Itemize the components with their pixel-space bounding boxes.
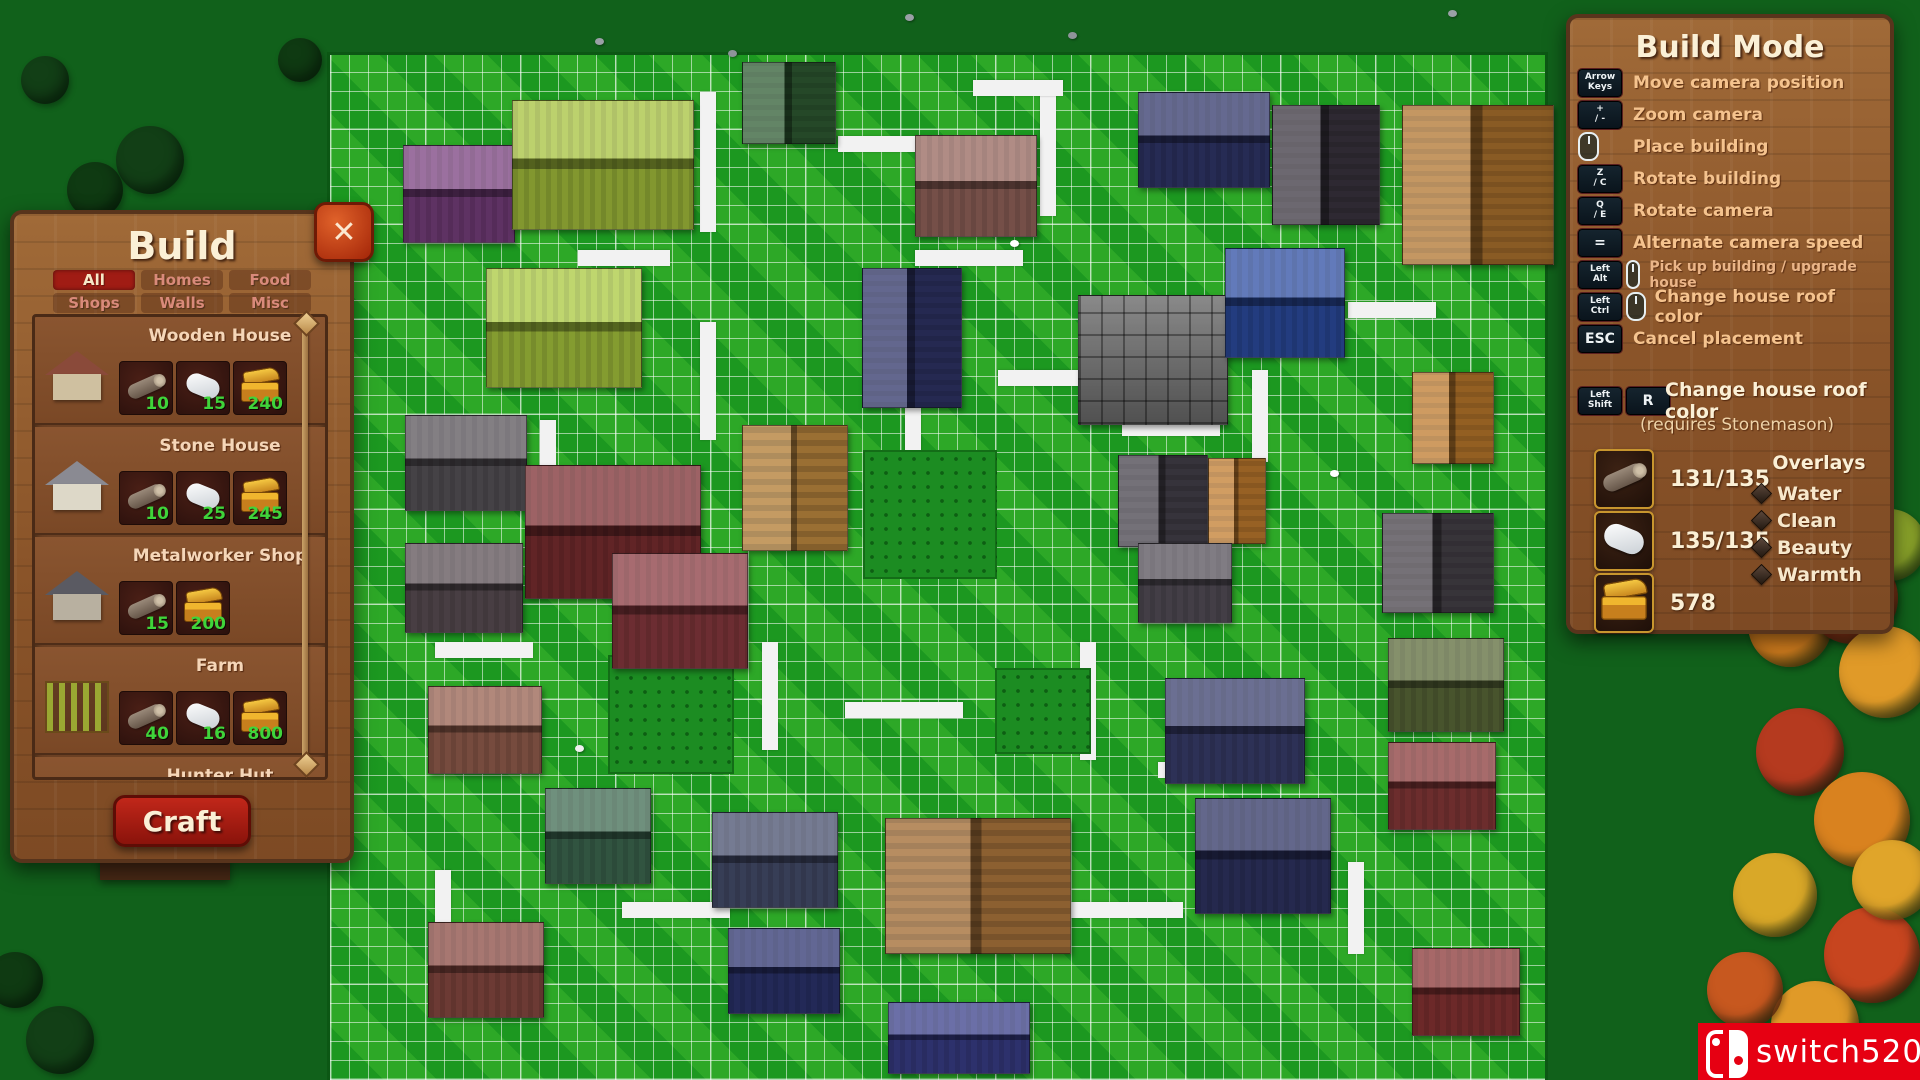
roof-shortcut-keys: Left ShiftR xyxy=(1578,387,1655,415)
rock-prop xyxy=(905,14,914,21)
road-tile xyxy=(973,80,1063,96)
resource-value: 578 xyxy=(1670,591,1716,616)
cost-gold-chest: 245 xyxy=(233,471,287,525)
nintendo-switch-logo-icon xyxy=(1706,1030,1748,1074)
build-item-stone-house[interactable]: Stone House1025245 xyxy=(35,427,325,535)
building[interactable] xyxy=(915,135,1037,237)
build-item-name: Hunter Hut xyxy=(119,766,321,780)
overlays-section: Overlays WaterCleanBeautyWarmth xyxy=(1754,452,1884,588)
building[interactable] xyxy=(1272,105,1380,225)
key-left-ctrl: Left Ctrl xyxy=(1578,293,1622,321)
thumb-roof xyxy=(45,351,109,375)
resource-row: 135/135 xyxy=(1594,512,1770,570)
tree xyxy=(21,56,69,104)
shortcut-keys: = xyxy=(1578,229,1624,257)
building[interactable] xyxy=(428,686,542,774)
cost-gold-chest: 240 xyxy=(233,361,287,415)
shortcut-row: Place building xyxy=(1578,132,1884,161)
build-item-hunter-hut[interactable]: Hunter Hut xyxy=(35,757,325,780)
tree xyxy=(0,952,43,1008)
resource-stone xyxy=(1594,511,1654,571)
rock-prop xyxy=(595,38,604,45)
cost-value: 800 xyxy=(248,724,284,744)
cost-log: 15 xyxy=(119,581,173,635)
road-tile xyxy=(435,642,533,658)
joycon-right-icon xyxy=(1729,1030,1748,1078)
cost-value: 240 xyxy=(248,394,284,414)
watermark-switch520: switch520 xyxy=(1698,1023,1920,1080)
build-mode-title: Build Mode xyxy=(1570,30,1890,65)
cost-log: 10 xyxy=(119,361,173,415)
rock-prop xyxy=(1010,240,1019,247)
building[interactable] xyxy=(1118,455,1208,547)
building[interactable] xyxy=(742,425,848,551)
overlay-diamond-icon xyxy=(1751,537,1772,558)
cost-row: 1015240 xyxy=(119,361,287,415)
shortcut-row: + / -Zoom camera xyxy=(1578,100,1884,129)
road-tile xyxy=(700,322,716,440)
cost-value: 245 xyxy=(248,504,284,524)
shortcut-label: Move camera position xyxy=(1633,73,1844,93)
build-mode-panel: Build Mode Arrow KeysMove camera positio… xyxy=(1566,14,1894,634)
tab-row-1: AllHomesFood xyxy=(54,270,310,290)
building[interactable] xyxy=(1138,543,1232,623)
shortcut-label: Rotate camera xyxy=(1633,201,1774,221)
tree xyxy=(1733,853,1817,937)
building[interactable] xyxy=(1382,513,1494,613)
build-item-name: Metalworker Shop xyxy=(119,546,321,566)
overlay-diamond-icon xyxy=(1751,564,1772,585)
build-item-name: Farm xyxy=(119,656,321,676)
building[interactable] xyxy=(1225,248,1345,358)
close-icon: ✕ xyxy=(331,215,356,250)
cost-value: 16 xyxy=(202,724,226,744)
shortcut-label: Zoom camera xyxy=(1633,105,1763,125)
shortcut-keys: Z / C xyxy=(1578,165,1624,193)
shortcut-keys: ESC xyxy=(1578,325,1624,353)
building[interactable] xyxy=(1412,372,1494,464)
shortcut-keys: Left Alt xyxy=(1578,260,1640,289)
building[interactable] xyxy=(512,100,694,230)
building[interactable] xyxy=(888,1002,1030,1074)
shortcut-keys: Q / E xyxy=(1578,197,1624,225)
thumb-wall xyxy=(53,484,101,510)
cost-log: 40 xyxy=(119,691,173,745)
building[interactable] xyxy=(1388,638,1504,732)
building[interactable] xyxy=(1195,798,1331,914)
overlay-clean[interactable]: Clean xyxy=(1754,507,1884,534)
tab-walls[interactable]: Walls xyxy=(141,293,223,313)
key-: = xyxy=(1578,229,1622,257)
joycon-left-icon xyxy=(1706,1030,1723,1078)
cost-gold-chest: 200 xyxy=(176,581,230,635)
building-thumbnail xyxy=(39,455,115,519)
overlay-label: Warmth xyxy=(1777,564,1862,586)
road-tile xyxy=(915,250,1023,266)
rock-prop xyxy=(1448,10,1457,17)
log-icon xyxy=(1601,461,1648,495)
cost-value: 40 xyxy=(145,724,169,744)
mouse-icon xyxy=(1578,132,1599,161)
cost-stone: 25 xyxy=(176,471,230,525)
build-item-wooden-house[interactable]: Wooden House1015240 xyxy=(35,317,325,425)
building[interactable] xyxy=(405,543,523,633)
key-z-c: Z / C xyxy=(1578,165,1622,193)
mouse-icon xyxy=(1626,292,1646,321)
cost-log: 10 xyxy=(119,471,173,525)
key-left-shift: Left Shift xyxy=(1578,387,1622,415)
overlay-beauty[interactable]: Beauty xyxy=(1754,534,1884,561)
thumb-wall xyxy=(53,374,101,400)
building-thumbnail xyxy=(39,565,115,629)
key-r: R xyxy=(1626,387,1670,415)
key-arrow-keys: Arrow Keys xyxy=(1578,69,1622,97)
shortcut-keys: Arrow Keys xyxy=(1578,69,1624,97)
cost-value: 10 xyxy=(145,394,169,414)
building-thumbnail xyxy=(39,675,115,739)
building[interactable] xyxy=(428,922,544,1018)
cost-row: 1025245 xyxy=(119,471,287,525)
craft-button[interactable]: Craft xyxy=(113,795,251,847)
thumb-roof xyxy=(45,461,109,485)
resource-row: 578 xyxy=(1594,574,1770,632)
close-button[interactable]: ✕ xyxy=(314,202,374,262)
build-item-name: Wooden House xyxy=(119,326,321,346)
key-: + / - xyxy=(1578,101,1622,129)
shortcut-label: Place building xyxy=(1633,137,1768,157)
cost-gold-chest: 800 xyxy=(233,691,287,745)
building[interactable] xyxy=(1165,678,1305,784)
rock-prop xyxy=(1330,470,1339,477)
rock-prop xyxy=(575,745,584,752)
overlay-label: Water xyxy=(1777,483,1841,505)
tab-food[interactable]: Food xyxy=(229,270,311,290)
road-tile xyxy=(838,136,926,152)
shortcut-row: Z / CRotate building xyxy=(1578,164,1884,193)
tree xyxy=(1707,952,1783,1028)
shortcut-row: Left AltPick up building / upgrade house xyxy=(1578,260,1884,289)
building[interactable] xyxy=(742,62,836,144)
cost-value: 25 xyxy=(202,504,226,524)
tab-row-2: ShopsWallsMisc xyxy=(54,293,310,313)
road-tile xyxy=(1348,862,1364,954)
tree xyxy=(116,126,184,194)
craft-button-label: Craft xyxy=(143,805,222,838)
road-tile xyxy=(1348,302,1436,318)
key-q-e: Q / E xyxy=(1578,197,1622,225)
cost-stone: 15 xyxy=(176,361,230,415)
road-tile xyxy=(578,250,670,266)
tab-homes[interactable]: Homes xyxy=(141,270,223,290)
scrollbar[interactable] xyxy=(302,318,308,770)
building[interactable] xyxy=(1078,295,1228,425)
key-esc: ESC xyxy=(1578,325,1622,353)
overlay-diamond-icon xyxy=(1751,510,1772,531)
road-tile xyxy=(1252,370,1268,462)
tab-all[interactable]: All xyxy=(53,270,135,290)
building[interactable] xyxy=(612,553,748,669)
tree xyxy=(278,38,322,82)
cost-stone: 16 xyxy=(176,691,230,745)
overlays-title: Overlays xyxy=(1754,452,1884,474)
road-tile xyxy=(700,92,716,232)
cost-value: 10 xyxy=(145,504,169,524)
building[interactable] xyxy=(405,415,527,511)
shortcut-row: Left CtrlChange house roof color xyxy=(1578,292,1884,321)
game-screen: Build ✕ AllHomesFoodShopsWallsMisc Woode… xyxy=(0,0,1920,1080)
building[interactable] xyxy=(728,928,840,1014)
cost-value: 200 xyxy=(191,614,227,634)
building[interactable] xyxy=(1412,948,1520,1036)
rock-prop xyxy=(1068,32,1077,39)
watermark-text: switch520 xyxy=(1756,1034,1920,1070)
building[interactable] xyxy=(1388,742,1496,830)
farm-field xyxy=(995,668,1091,754)
shortcut-row: Q / ERotate camera xyxy=(1578,196,1884,225)
resource-gold-chest xyxy=(1594,573,1654,633)
overlay-toggle-list: WaterCleanBeautyWarmth xyxy=(1754,480,1884,588)
roof-shortcut-note: (requires Stonemason) xyxy=(1640,415,1834,435)
cost-row: 15200 xyxy=(119,581,230,635)
building[interactable] xyxy=(862,268,962,408)
cost-value: 15 xyxy=(202,394,226,414)
resource-row: 131/135 xyxy=(1594,450,1770,508)
rock-prop xyxy=(728,50,737,57)
overlay-diamond-icon xyxy=(1751,483,1772,504)
shortcut-label: Cancel placement xyxy=(1633,329,1803,349)
stone-icon xyxy=(1601,520,1648,558)
tab-shops[interactable]: Shops xyxy=(53,293,135,313)
shortcut-keys: Left Ctrl xyxy=(1578,292,1646,321)
tree xyxy=(26,1006,94,1074)
building[interactable] xyxy=(545,788,651,884)
key-left-alt: Left Alt xyxy=(1578,261,1622,289)
gold-chest-icon xyxy=(1601,584,1647,620)
shortcut-label: Change house roof color xyxy=(1655,287,1884,327)
overlay-label: Clean xyxy=(1777,510,1837,532)
build-tabs: AllHomesFoodShopsWallsMisc xyxy=(54,270,310,316)
farm-field xyxy=(863,450,997,579)
resource-log xyxy=(1594,449,1654,509)
building[interactable] xyxy=(1402,105,1554,265)
cost-row: 4016800 xyxy=(119,691,287,745)
cost-value: 15 xyxy=(145,614,169,634)
building[interactable] xyxy=(486,268,642,388)
road-tile xyxy=(845,702,963,718)
shortcut-keys: + / - xyxy=(1578,101,1624,129)
build-panel-title: Build xyxy=(14,224,350,268)
thumb-wall xyxy=(53,594,101,620)
resource-summary: 131/135135/135578 xyxy=(1594,450,1770,636)
shortcut-label: Alternate camera speed xyxy=(1633,233,1863,253)
build-item-farm[interactable]: Farm4016800 xyxy=(35,647,325,755)
building[interactable] xyxy=(712,812,838,908)
overlay-warmth[interactable]: Warmth xyxy=(1754,561,1884,588)
shortcut-row: =Alternate camera speed xyxy=(1578,228,1884,257)
mouse-icon xyxy=(1626,260,1640,289)
farm-thumbnail xyxy=(45,681,109,733)
road-tile xyxy=(1065,902,1183,918)
overlay-label: Beauty xyxy=(1777,537,1852,559)
building[interactable] xyxy=(403,145,515,243)
building[interactable] xyxy=(885,818,1071,954)
tab-misc[interactable]: Misc xyxy=(229,293,311,313)
road-tile xyxy=(762,642,778,750)
building[interactable] xyxy=(1138,92,1270,188)
shortcut-row: ESCCancel placement xyxy=(1578,324,1884,353)
build-item-list[interactable]: Wooden House1015240Stone House1025245Met… xyxy=(32,314,328,780)
build-panel: Build ✕ AllHomesFoodShopsWallsMisc Woode… xyxy=(10,210,354,863)
farm-field xyxy=(608,655,734,774)
shortcut-row: Arrow KeysMove camera position xyxy=(1578,68,1884,97)
tree xyxy=(1839,626,1920,718)
shortcut-list: Arrow KeysMove camera position+ / -Zoom … xyxy=(1578,68,1884,356)
building-thumbnail xyxy=(39,345,115,409)
build-item-name: Stone House xyxy=(119,436,321,456)
shortcut-keys xyxy=(1578,132,1624,161)
road-tile xyxy=(1040,88,1056,216)
build-item-metalworker-shop[interactable]: Metalworker Shop15200 xyxy=(35,537,325,645)
thumb-roof xyxy=(45,571,109,595)
building[interactable] xyxy=(1208,458,1266,544)
overlay-water[interactable]: Water xyxy=(1754,480,1884,507)
shortcut-label: Rotate building xyxy=(1633,169,1781,189)
